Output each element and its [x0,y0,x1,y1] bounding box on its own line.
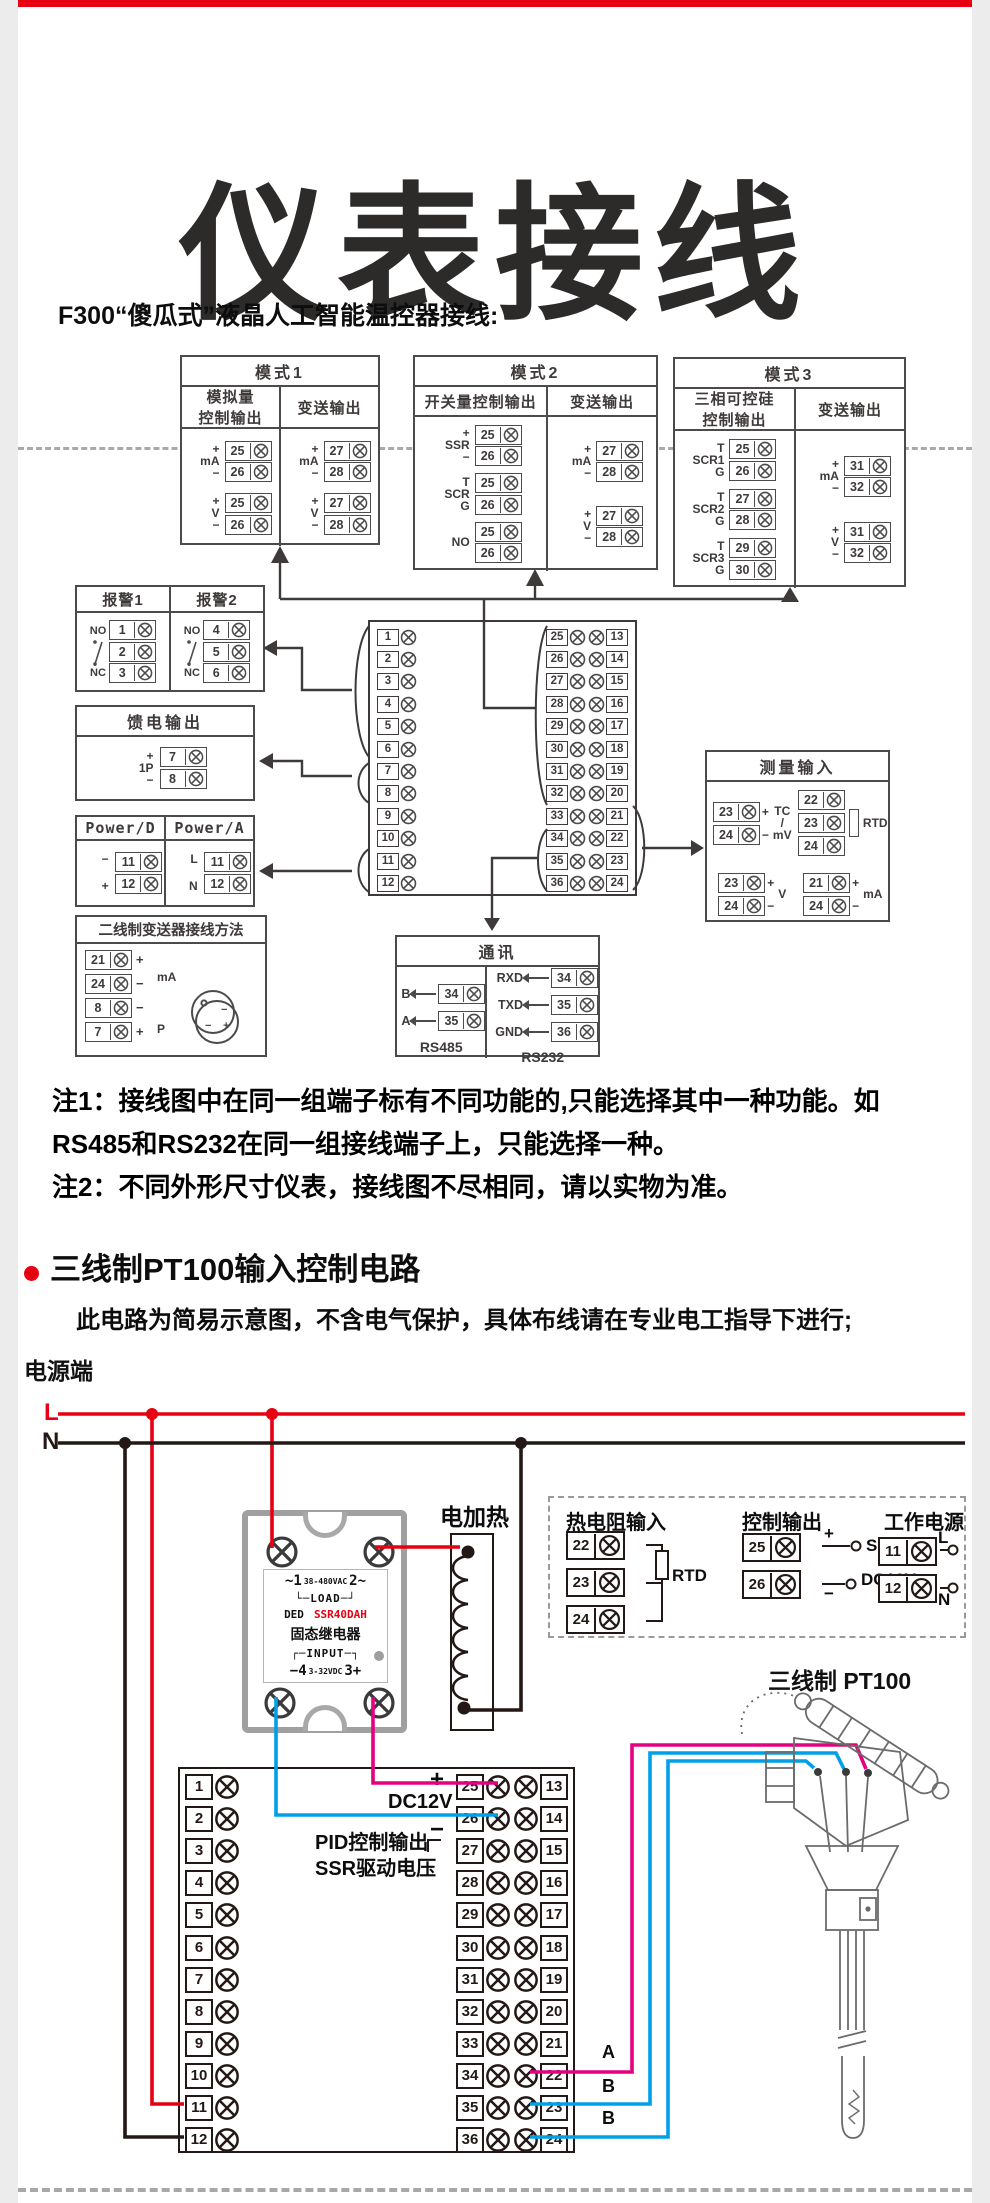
terminal-number: 32 [845,545,870,561]
terminal-number: 27 [730,491,755,507]
terminal-row: 25 13 [456,1771,568,1803]
screw-icon [214,2031,240,2057]
terminal-row: 4 [377,693,418,715]
section2-subtitle: 此电路为简易示意图，不含电气保护，具体布线请在专业电工指导下进行; [76,1300,852,1335]
screw-icon [826,815,842,831]
mark-minus: − [146,775,153,786]
terminal-number: 7 [86,1024,111,1040]
screw-icon [400,673,417,690]
dc12v-label: DC12V [388,1791,452,1814]
alarm-title: 报警2 [171,587,263,613]
terminal-row: 2 [185,1803,241,1835]
screw-icon [910,1540,933,1563]
terminal-number: 33 [546,808,568,825]
terminal-number: 24 [799,838,824,854]
screw-icon [503,448,519,464]
ctrl-terminals: 25 26 [742,1533,801,1599]
terminal-group: TSCR1G 25 26 [692,438,776,483]
terminal-number: 25 [476,427,501,443]
screw-icon [588,763,605,780]
terminal: 28 [596,462,643,482]
terminal: 23 [798,813,845,833]
screw-icon [362,1535,396,1569]
screw-icon [400,785,417,802]
terminal-row: 6 [377,738,418,760]
mode2-col1-title: 开关量控制输出 [415,387,546,417]
terminal-number: 27 [597,443,622,459]
ssr-terminal1: ~1 [285,1573,302,1589]
terminal-number: 1 [377,629,399,646]
terminal-number: 30 [456,1935,484,1961]
terminal: 3 [109,663,156,683]
screw-icon [485,2095,511,2121]
screw-icon [757,463,773,479]
terminal-row: 2 [377,648,418,670]
screw-icon [588,785,605,802]
mark-bottom: G [715,467,724,478]
tx-mark: − [205,1020,211,1032]
terminal: 24 [85,974,132,994]
ssr-led-icon [374,1651,384,1661]
terminal-number: 23 [606,853,628,870]
screw-icon [872,545,888,561]
heater-label: 电加热 [440,1498,509,1532]
mark: + [102,881,109,892]
terminal-row: 7 [185,1964,241,1996]
screw-icon [588,741,605,758]
mark-minus: − [767,899,774,913]
transmitter-icon: − − + [195,1000,239,1044]
arrow-left-icon [525,1031,549,1033]
terminal-row: 6 [185,1931,241,1963]
screw-icon [400,808,417,825]
ctrl-output-title: 控制输出 [742,1506,822,1535]
heater-box [450,1533,494,1731]
terminal-number: 25 [730,441,755,457]
terminal-number: 15 [540,1838,568,1864]
mode1-col2-groups: +mA− 27 28 +V− 27 28 [281,429,378,546]
screw-icon [598,1534,621,1557]
terminal: 31 [844,522,891,542]
polarity-mark: − [136,976,144,991]
screw-icon [214,1967,240,1993]
comm-row: RXD 34 [487,966,598,989]
screw-icon [579,997,595,1013]
screw-icon [143,854,159,870]
terminal-number: 2 [110,644,135,660]
screw-icon [485,2063,511,2089]
mode2-title: 模式2 [415,357,656,387]
screw-icon [513,1999,539,2025]
mark-bottom: G [715,565,724,576]
terminal-number: 12 [377,875,399,892]
screw-icon [400,696,417,713]
arrow-left-icon [525,977,549,979]
mode2-col-retransmit: 变送输出 +mA− 27 28 +V− [546,387,656,571]
terminal-row: 29 17 [456,1899,568,1931]
arrow-left-icon [525,1004,549,1006]
rs232-column: RXD 34 TXD 35 GND [485,967,598,1058]
screw-icon [231,644,247,660]
terminal: 7 [160,747,207,767]
terminal-number: 26 [546,651,568,668]
mode2-col-switch: 开关量控制输出 +SSR− 25 26 TSCRG [415,387,546,571]
terminal-row: 3 [185,1835,241,1867]
screw-icon [352,517,368,533]
terminal-group: +mA− 27 28 [561,439,643,484]
wire-b1-label: B [602,2076,615,2097]
screw-icon [569,785,586,802]
terminal-number: 11 [377,853,399,870]
alarm-contact-labels: NO NC [90,625,107,679]
terminal-group: +mA− 25 26 [190,439,272,484]
screw-icon [214,1935,240,1961]
terminal-number: 30 [546,741,568,758]
two-wire-title: 二线制变送器接线方法 [77,917,265,944]
comm-box: 通讯 B 34 A 35 [395,935,600,1057]
terminal: 30 [729,560,776,580]
terminal-number: 35 [552,997,577,1013]
terminal-number: 22 [606,830,628,847]
terminal-group: +V− 25 26 [190,492,272,537]
screw-icon [503,475,519,491]
p-label: P [157,1022,165,1036]
terminal: 12 [204,874,251,894]
terminal: 22 [798,790,845,810]
terminal: 34 [551,968,598,988]
pt100-label: 三线制 PT100 [768,1662,911,1696]
section2-title: 三线制PT100输入控制电路 [50,1244,420,1289]
terminal-number: 8 [161,771,186,787]
screw-icon [352,443,368,459]
terminal-row: 31 19 [546,760,628,782]
terminal-number: 11 [185,2095,213,2121]
terminal-group: +V− 27 28 [561,504,643,549]
mark-bottom: − [463,452,470,463]
screw-icon [588,673,605,690]
terminal: 12 [115,874,162,894]
terminal-number: 3 [110,665,135,681]
terminal-row: 8 − [85,996,144,1019]
page: 仪表接线 F300“傻瓜式”液晶人工智能温控器接线: 模式1 模拟量 控制输出 … [0,0,990,2203]
terminal-number: 29 [730,540,755,556]
terminal: 4 [203,620,250,640]
two-wire-box: 二线制变送器接线方法 21 + 24 − 8 − [75,915,267,1057]
screw-icon [757,512,773,528]
terminal-number: 25 [744,1536,772,1560]
screw-icon [253,464,269,480]
ssr-terminal3: 3+ [344,1663,361,1679]
screw-icon [569,808,586,825]
terminal: 27 [596,441,643,461]
ma-label: mA [863,888,882,900]
pwr-terminals: 11 12 [878,1537,937,1603]
terminal-number: 19 [540,1967,568,1993]
screw-icon [253,495,269,511]
terminal-number: 34 [552,970,577,986]
terminal-number: 19 [606,763,628,780]
terminal-number: 25 [226,443,251,459]
mode2-col2-groups: +mA− 27 28 +V− 27 28 [548,417,656,571]
v-input-group: 23+ 24− V [718,871,786,917]
ssr-input-label: ┌─INPUT─┐ [291,1647,360,1660]
mark-bottom: G [460,501,469,512]
terminal-row: 30 18 [456,1931,568,1963]
screw-icon [757,562,773,578]
screw-icon [588,718,605,735]
terminal: 36 [551,1022,598,1042]
ssr-brand: DED [284,1608,304,1621]
screw-icon [188,749,204,765]
terminal-number: 4 [204,622,229,638]
terminal: 26 [475,495,522,515]
screw-icon [485,1902,511,1928]
screw-icon [588,830,605,847]
terminal-number: 24 [714,827,739,843]
terminal-row: 35 23 [546,850,628,872]
screw-icon [569,741,586,758]
terminal-number: 11 [116,854,141,870]
screw-icon [485,1838,511,1864]
terminal-row: 24 − [85,972,144,995]
terminal-number: 14 [540,1806,568,1832]
screw-icon [513,1870,539,1896]
screw-icon [569,673,586,690]
screw-icon [400,629,417,646]
screw-icon [569,853,586,870]
terminal-number: 3 [377,673,399,690]
mark-bottom: − [311,520,318,531]
work-power-title: 工作电源 [884,1506,964,1535]
mode2-box: 模式2 开关量控制输出 +SSR− 25 26 [413,355,658,570]
alarm-column: 报警2 NO NC 4 5 6 [169,587,263,690]
terminal-group: +V− 27 28 [289,492,371,537]
terminal-group: TSCRG 25 26 [440,472,522,517]
mode3-col-retransmit: 变送输出 +mA− 31 32 +V− [794,389,904,588]
tx-mark: + [223,1020,229,1032]
terminal: 8 [85,998,132,1018]
terminal-number: 26 [476,545,501,561]
terminal-number: 3 [185,1838,213,1864]
notes-text: 注1：接线图中在同一组端子标有不同功能的,只能选择其中一种功能。如 RS485和… [52,1080,957,1209]
ssr-relay: ~138-480VAC2~ └─LOAD─┘ DEDSSR40DAH 固态继电器… [242,1510,407,1733]
terminal-row: 10 [377,828,418,850]
terminal: 24 [803,896,850,916]
line-n-label: N [42,1428,59,1456]
screw-icon [624,464,640,480]
terminal-number: 36 [456,2127,484,2153]
terminal-number: 10 [185,2063,213,2089]
terminal-number: 5 [185,1902,213,1928]
terminal-number: 34 [546,830,568,847]
n-wire-label: N [938,1590,950,1610]
terminal-number: 29 [546,718,568,735]
terminal-group: TSCR3G 29 30 [692,537,776,582]
mark-bottom: − [311,468,318,479]
terminal-group: NO 25 26 [440,520,522,565]
screw-icon [214,1774,240,1800]
screw-icon [513,1935,539,1961]
screw-icon [485,1806,511,1832]
ssr-terminal2: 2~ [349,1573,366,1589]
terminal-number: 26 [226,517,251,533]
screw-icon [831,898,847,914]
terminal-number: 31 [845,524,870,540]
terminal-row: 3 [377,671,418,693]
mark-plus: + [762,805,769,819]
terminal-row: 35 23 [456,2092,568,2124]
wire-a-label: A [602,2042,615,2063]
mode3-col-scr: 三相可控硅 控制输出 TSCR1G 25 26 TSCR2G [675,389,794,588]
terminal-number: 12 [880,1577,908,1601]
terminal: 23 [713,802,760,822]
terminal-number: 26 [456,1806,484,1832]
ssr-model: SSR40DAH [314,1608,367,1621]
terminal-number: 27 [325,495,350,511]
screw-icon [513,2031,539,2057]
rtd-terminals: 22 23 24 [566,1531,625,1634]
central-right-terminals: 25 13 26 14 27 15 [546,626,628,895]
bottom-left-terminals: 1 2 3 4 5 [185,1771,241,2156]
mode1-col1-groups: +mA− 25 26 +V− 25 26 [182,429,279,546]
terminal-number: 5 [377,718,399,735]
bottom-page-divider [18,2188,972,2192]
screw-icon [774,1573,797,1596]
terminal-group: +mA− 27 28 [289,439,371,484]
terminal-number: 6 [185,1935,213,1961]
terminal-row: 28 16 [546,693,628,715]
mark-top: T [717,443,724,454]
terminal-number: 6 [204,665,229,681]
terminal: 34 [438,984,485,1004]
terminal-row: 27 15 [546,671,628,693]
mark: L [190,854,197,865]
mark-bottom: − [584,533,591,544]
terminal-number: 23 [714,804,739,820]
screw-icon [872,479,888,495]
terminal-number: 31 [845,458,870,474]
screw-icon [624,508,640,524]
terminal: 29 [729,538,776,558]
screw-icon [143,876,159,892]
terminal-row: 31 19 [456,1964,568,1996]
screw-icon [231,665,247,681]
screw-icon [214,1870,240,1896]
terminal-number: 13 [540,1774,568,1800]
terminal: 21 [803,873,850,893]
mode3-col1-title: 三相可控硅 控制输出 [675,389,794,431]
screw-icon [746,875,762,891]
screw-icon [485,2031,511,2057]
screw-icon [137,622,153,638]
terminal: 32 [844,477,891,497]
screw-icon [113,1000,129,1016]
screw-icon [569,696,586,713]
terminal-number: 32 [845,479,870,495]
terminal: 27 [596,506,643,526]
terminal-row: 30 18 [546,738,628,760]
screw-icon [598,1608,621,1631]
terminal-number: 35 [546,853,568,870]
terminal-row: 28 16 [456,1867,568,1899]
mark-plus: + [146,751,153,762]
terminal-number: 7 [185,1967,213,1993]
terminal-number: 4 [377,696,399,713]
mode1-box: 模式1 模拟量 控制输出 +mA− 25 26 [180,355,380,545]
arrow-left-icon [412,1020,436,1022]
screw-icon [579,970,595,986]
terminal-row: 9 [377,805,418,827]
screw-icon [757,491,773,507]
terminal-number: 26 [476,448,501,464]
terminal-number: 21 [540,2031,568,2057]
ssr-label-plate: ~138-480VAC2~ └─LOAD─┘ DEDSSR40DAH 固态继电器… [263,1569,388,1683]
feed-output-box: 馈电输出 +1P− 7 8 [75,705,255,801]
terminal: 26 [225,462,272,482]
terminal-number: 10 [377,830,399,847]
terminal: 24 [713,825,760,845]
power-side-label: 电源端 [24,1352,93,1386]
screw-icon [513,2095,539,2121]
mark-minus: − [762,828,769,842]
tc-label: TC / mV [773,805,792,841]
screw-icon [137,644,153,660]
terminal-number: 23 [540,2095,568,2121]
terminal-row: 11 [185,2092,241,2124]
screw-icon [588,875,605,892]
terminal-number: 17 [606,718,628,735]
group-label: NO [452,536,470,549]
terminal-row: 9 [185,2028,241,2060]
power-d-column: Power/D −+ 11 12 [77,817,164,905]
terminal-number: 18 [606,741,628,758]
ssr-voltage-range: 38-480VAC [304,1577,347,1586]
ssr-name: 固态继电器 [291,1624,361,1644]
terminal-number: 7 [161,749,186,765]
ssr-load-label: └─LOAD─┘ [295,1592,356,1605]
mark: − [102,854,109,865]
terminal-number: 24 [804,898,829,914]
comm-row: GND 36 [487,1020,598,1043]
terminal-number: 31 [546,763,568,780]
screw-icon [137,665,153,681]
mode1-col2-title: 变送输出 [281,387,378,429]
screw-icon [513,1967,539,1993]
terminal-row: 21 + [85,948,144,971]
terminal-number: 22 [799,792,824,808]
terminal-number: 9 [377,808,399,825]
rtd-resistor-icon [849,809,859,837]
terminal: 25 [475,522,522,542]
screw-icon [253,443,269,459]
terminal: 8 [160,769,207,789]
screw-icon [113,1024,129,1040]
terminal-number: 36 [552,1024,577,1040]
screw-icon [253,517,269,533]
terminal-number: 9 [185,2031,213,2057]
terminal-number: 1 [110,622,135,638]
terminal-number: 16 [540,1870,568,1896]
alarm-column: 报警1 NO NC 1 2 3 [77,587,169,690]
ssr-input-range: 3-32VDC [309,1667,343,1676]
two-wire-rows: 21 + 24 − 8 − 7 + [85,947,144,1044]
terminal: 28 [324,462,371,482]
terminal-number: 13 [606,629,628,646]
l-wire-label: L [938,1528,948,1548]
terminal-number: 15 [606,673,628,690]
screw-icon [485,1774,511,1800]
screw-icon [485,1935,511,1961]
